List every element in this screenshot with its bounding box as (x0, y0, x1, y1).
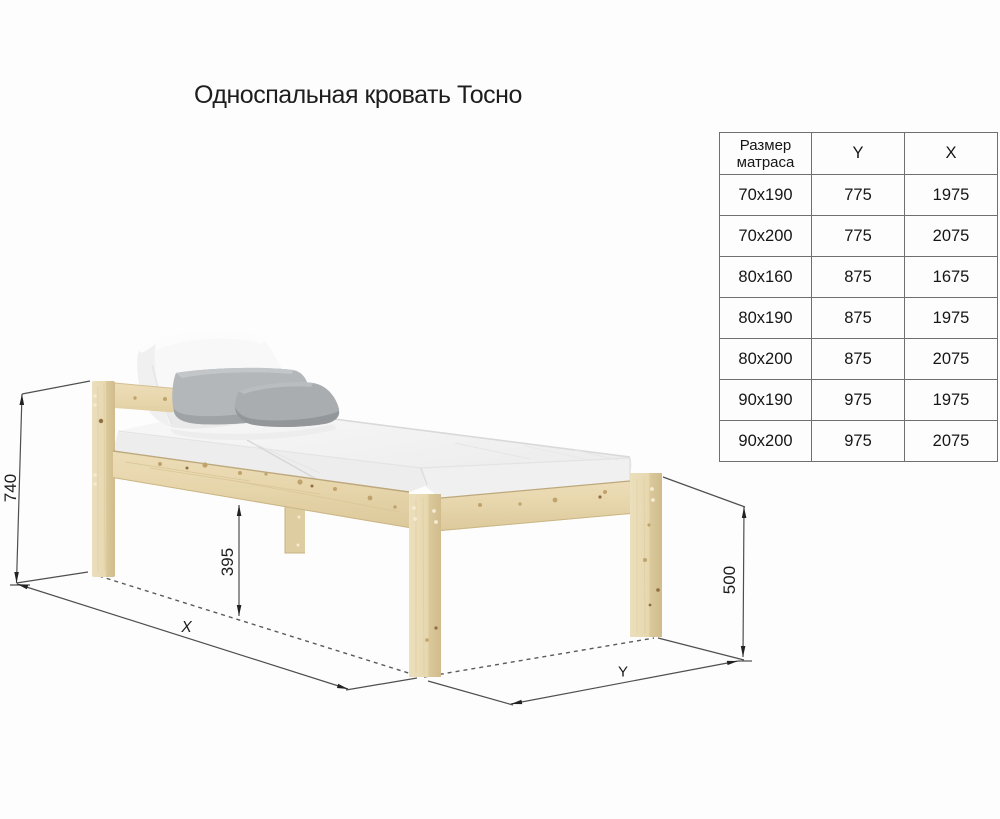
svg-text:500: 500 (720, 566, 739, 594)
svg-text:Y: Y (618, 664, 628, 681)
svg-text:740: 740 (1, 474, 20, 502)
svg-text:395: 395 (218, 548, 237, 576)
svg-text:X: X (180, 619, 192, 636)
